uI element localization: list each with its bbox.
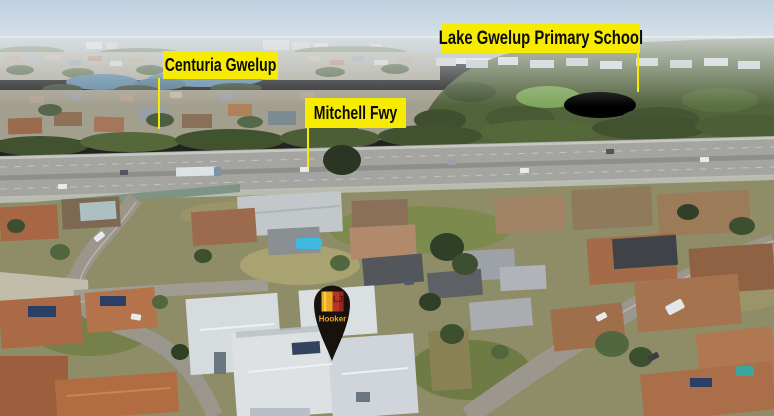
haze-overlay	[0, 36, 774, 106]
logo-initials: LJ	[333, 294, 343, 304]
ljhooker-property-pin-marker: LJ Hooker	[312, 284, 352, 362]
map-label-text: Centuria Gwelup	[165, 55, 277, 76]
map-label-text: Lake Gwelup Primary School	[439, 28, 643, 50]
leader-line-school	[637, 52, 639, 92]
patio-roof	[469, 297, 533, 330]
pin-teardrop-icon: LJ Hooker	[312, 284, 352, 362]
aerial-photo-canvas	[0, 0, 774, 416]
swimming-pool	[296, 238, 322, 249]
leader-line-centuria	[158, 78, 160, 129]
freeway-tree-silhouette	[323, 145, 361, 175]
map-label-centuria-gwelup: Centuria Gwelup	[163, 51, 278, 79]
aerial-listing-photo: Lake Gwelup Primary School Centuria Gwel…	[0, 0, 774, 416]
map-label-text: Mitchell Fwy	[314, 103, 397, 124]
logo-brand-name: Hooker	[319, 315, 347, 324]
map-label-mitchell-fwy: Mitchell Fwy	[305, 98, 406, 128]
ljhooker-logo: LJ Hooker	[319, 292, 347, 324]
map-label-lake-gwelup-primary-school: Lake Gwelup Primary School	[442, 24, 640, 53]
leader-line-freeway	[307, 127, 309, 167]
solar-panels	[28, 306, 56, 317]
